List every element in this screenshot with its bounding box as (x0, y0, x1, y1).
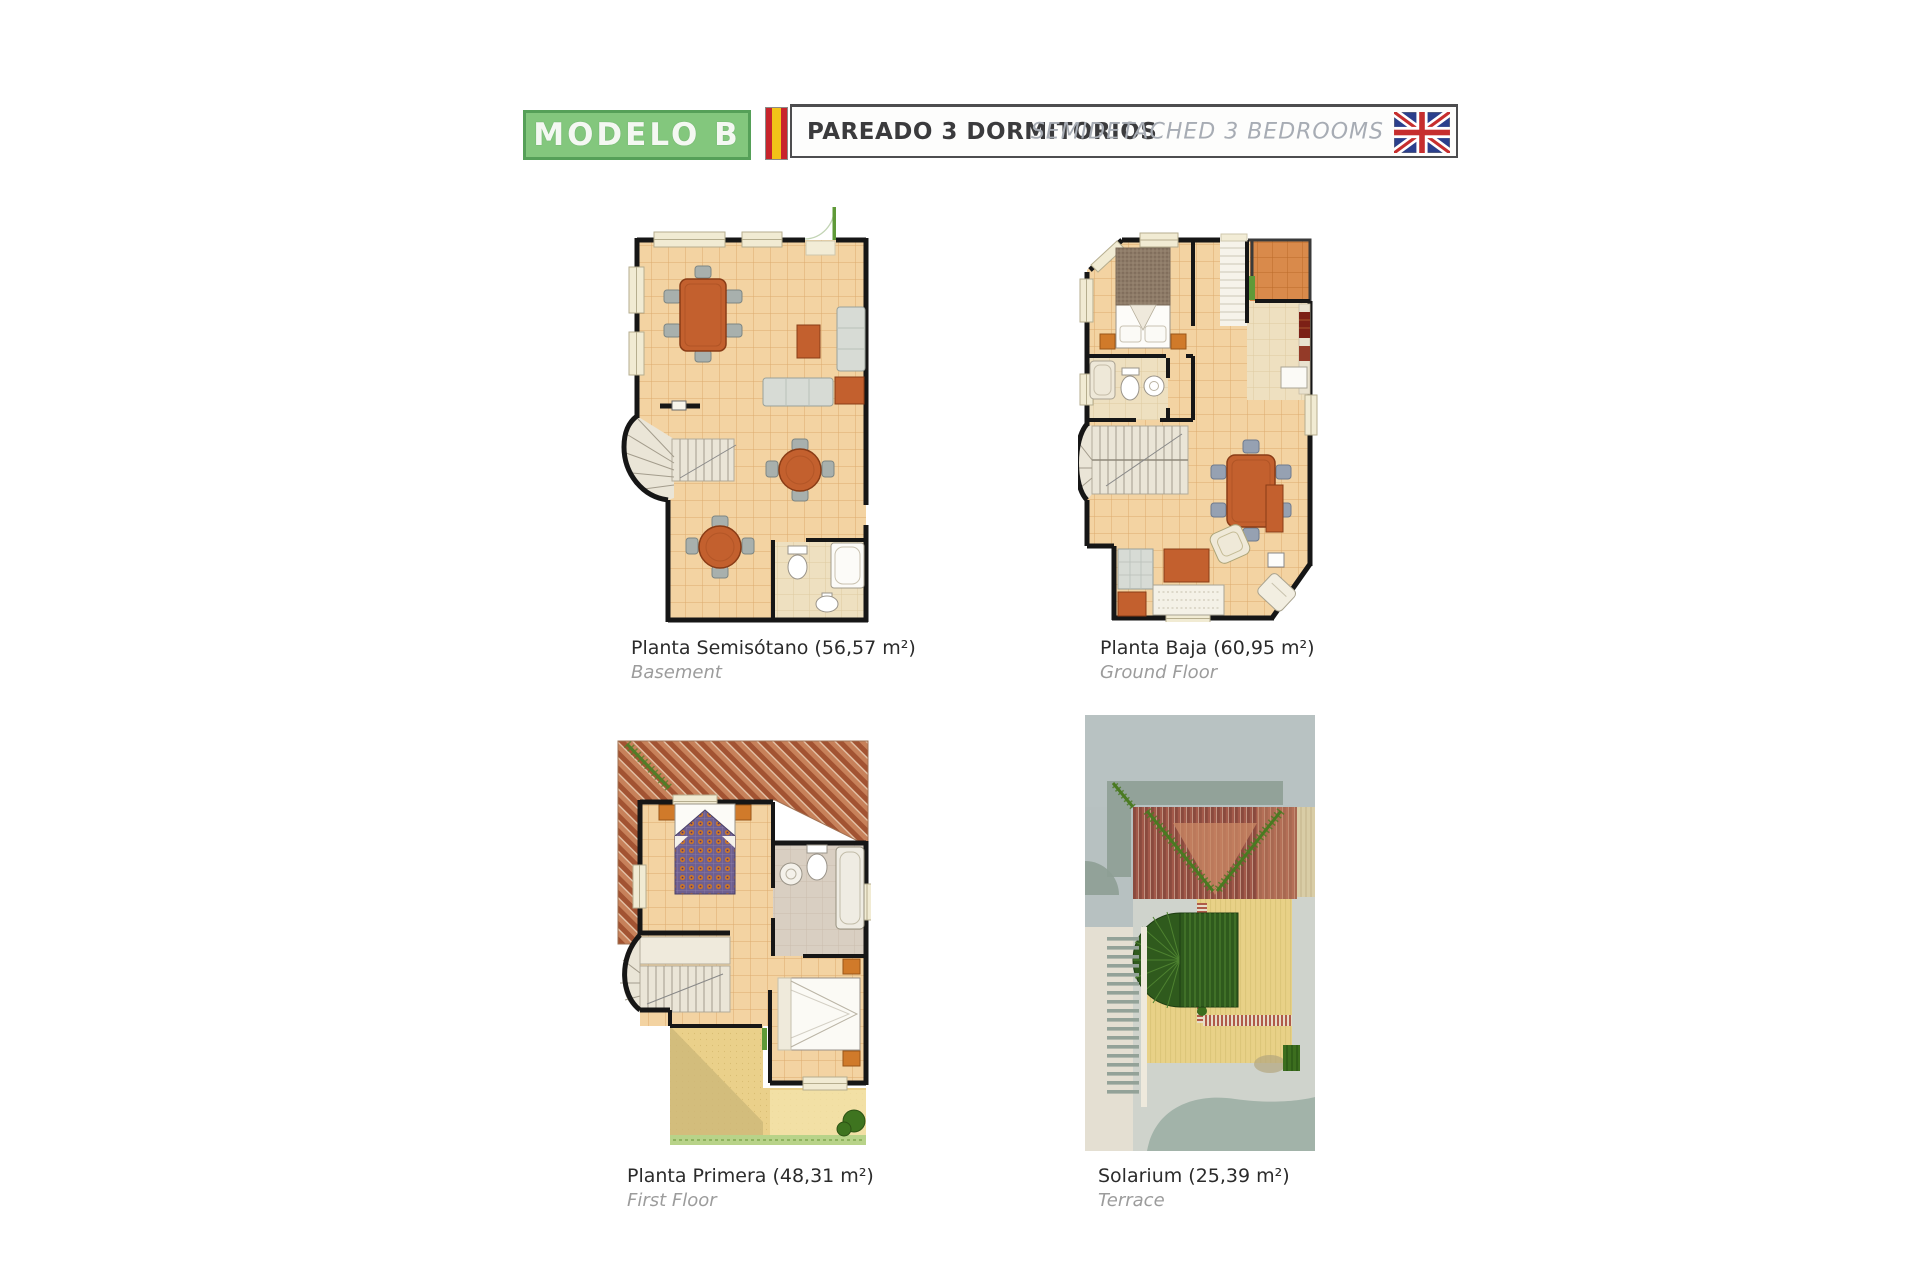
terrace-tiles (1250, 240, 1310, 301)
floor-plan-ground (1078, 228, 1318, 622)
plan-subtitle: First Floor (627, 1189, 874, 1212)
floor-plan-solarium (1085, 715, 1315, 1151)
plan-title: Solarium (25,39 m²) (1098, 1164, 1290, 1189)
floor-plan-first (615, 738, 871, 1156)
plan-title: Planta Semisótano (56,57 m²) (631, 636, 916, 661)
model-badge: MODELO B (523, 110, 751, 160)
ground-staircase (1078, 424, 1188, 500)
plan-subtitle: Basement (631, 661, 916, 684)
floor-plan-basement (618, 195, 874, 627)
spain-flag-icon (765, 107, 788, 160)
header-bar: PAREADO 3 DORMITORIOS SEMIDETACHED 3 BED… (790, 104, 1458, 158)
terrace-door (1249, 276, 1255, 300)
plan-subtitle: Ground Floor (1100, 661, 1315, 684)
plan-label-solarium: Solarium (25,39 m²) Terrace (1098, 1164, 1290, 1212)
entry-hall-steps (1220, 240, 1247, 326)
plan-title: Planta Baja (60,95 m²) (1100, 636, 1315, 661)
side-table (835, 377, 864, 404)
type-label-english: SEMIDETACHED 3 BEDROOMS (1031, 119, 1384, 144)
spain-flag-yellow-stripe (772, 108, 781, 159)
uk-flag-icon (1394, 112, 1450, 153)
plan-subtitle: Terrace (1098, 1189, 1290, 1212)
plan-label-basement: Planta Semisótano (56,57 m²) Basement (631, 636, 916, 684)
plan-label-ground-floor: Planta Baja (60,95 m²) Ground Floor (1100, 636, 1315, 684)
basement-entry-door (805, 207, 836, 255)
pergola (1133, 912, 1238, 1008)
plan-label-first-floor: Planta Primera (48,31 m²) First Floor (627, 1164, 874, 1212)
model-badge-label: MODELO B (533, 117, 741, 153)
spain-flag-red-stripe (781, 108, 787, 159)
entry-threshold (1221, 234, 1247, 241)
plan-title: Planta Primera (48,31 m²) (627, 1164, 874, 1189)
coffee-table (797, 325, 820, 358)
first-staircase (620, 935, 730, 1012)
brochure-page: { "header": { "model_label": "MODELO B",… (0, 0, 1920, 1280)
